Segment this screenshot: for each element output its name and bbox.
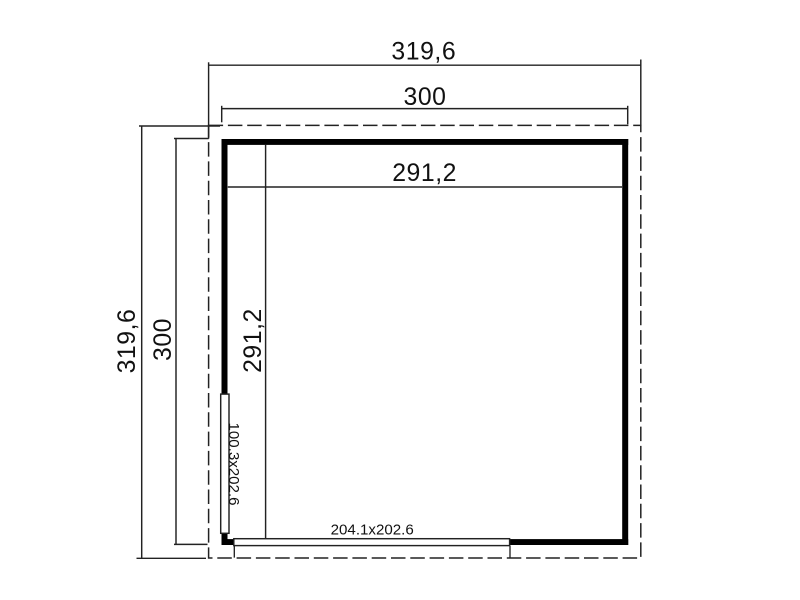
svg-text:100.3x202.6: 100.3x202.6 <box>225 422 242 505</box>
svg-text:319,6: 319,6 <box>391 38 456 65</box>
svg-text:291,2: 291,2 <box>392 160 457 187</box>
svg-text:300: 300 <box>150 318 177 361</box>
svg-text:319,6: 319,6 <box>114 309 141 374</box>
svg-text:291,2: 291,2 <box>240 308 267 373</box>
svg-text:204.1x202.6: 204.1x202.6 <box>331 522 414 539</box>
svg-text:300: 300 <box>403 84 446 111</box>
